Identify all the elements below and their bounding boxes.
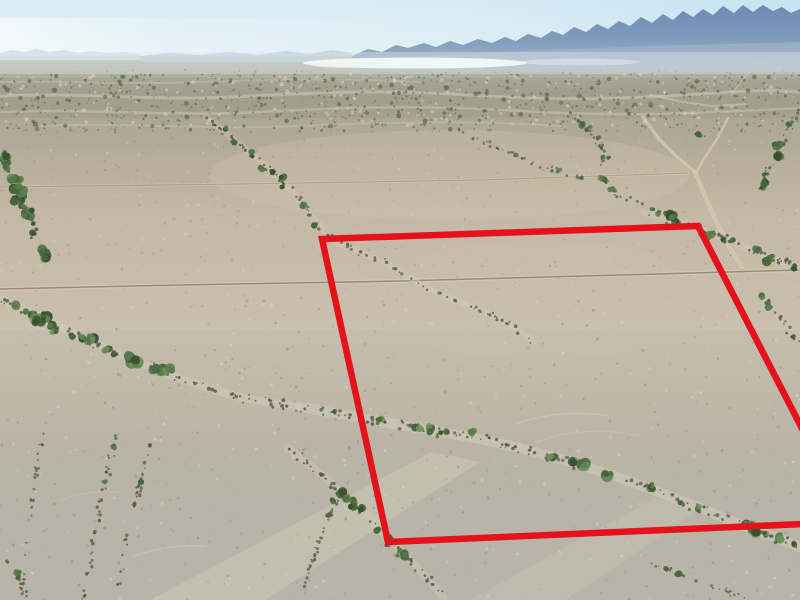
foreground-cool-tint <box>0 330 800 600</box>
pale-flat-parcel <box>360 240 720 360</box>
aerial-photo-canvas <box>0 0 800 600</box>
dry-lake-west <box>310 62 390 68</box>
dry-lake-east <box>520 59 640 66</box>
terrain-layer <box>0 56 800 600</box>
screenshot-root <box>0 0 800 600</box>
aerial-land-photo <box>0 0 800 600</box>
